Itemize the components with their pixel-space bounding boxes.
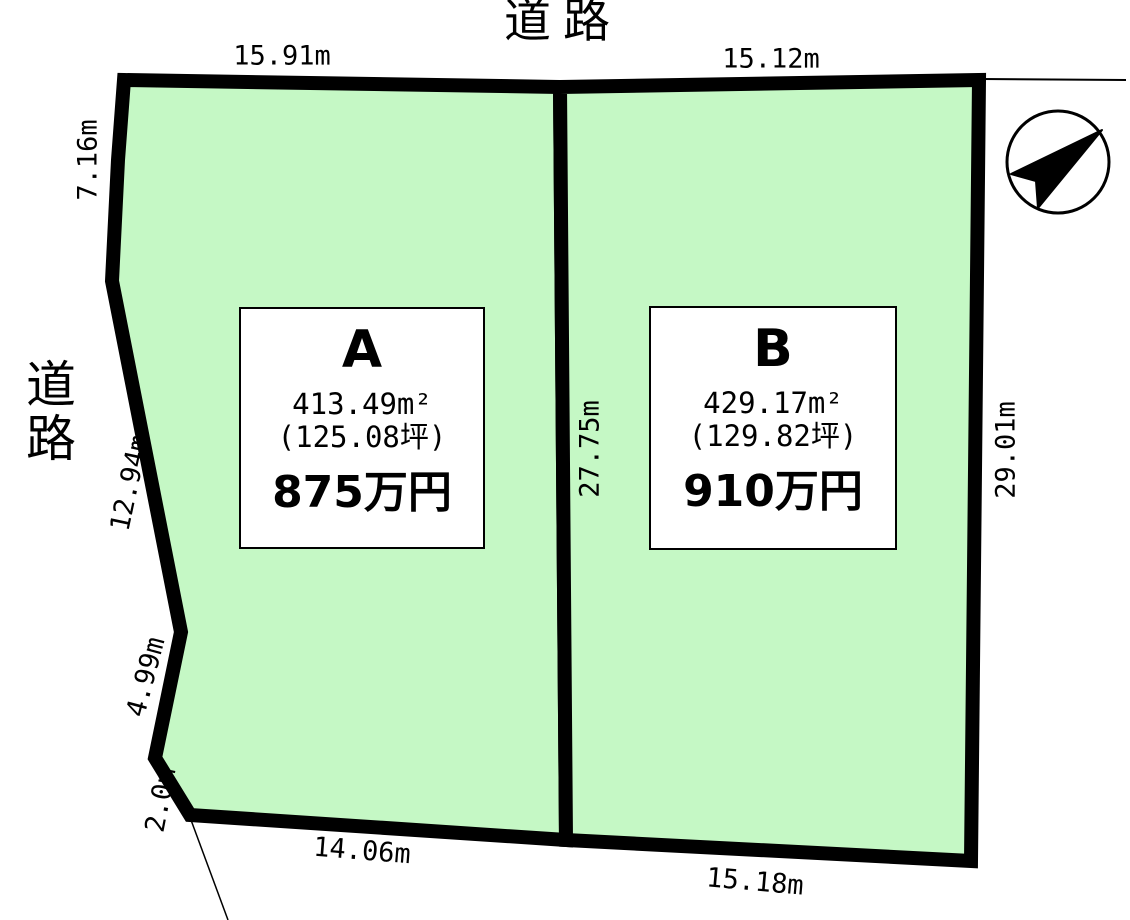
compass-icon (1007, 111, 1109, 213)
road-label-left: 道路 (24, 358, 78, 466)
parcel-b-area-tsubo: (129.82坪) (689, 420, 858, 453)
survey-line-bottom-left (191, 820, 228, 920)
parcel-b-price: 910万円 (683, 468, 863, 516)
parcel-b-area-m2: 429.17m² (703, 387, 843, 420)
dim-bottom-a: 14.06m (312, 834, 411, 869)
parcel-a-price: 875万円 (272, 469, 452, 517)
land-plot-diagram: 道路 道路 15.91m 15.12m 7.16m 12.94m 4.99m 2… (0, 0, 1130, 920)
dim-left-upper: 7.16m (75, 119, 102, 200)
parcel-b-id: B (753, 320, 793, 378)
dim-top-b: 15.12m (722, 46, 820, 73)
dim-bottom-b: 15.18m (705, 864, 805, 899)
dim-right-side: 29.01m (993, 401, 1020, 499)
parcel-a-area-m2: 413.49m² (292, 388, 432, 421)
dim-top-a: 15.91m (233, 43, 331, 70)
road-label-top: 道路 (504, 0, 622, 46)
dim-center-divider: 27.75m (577, 400, 604, 498)
parcel-a-id: A (342, 321, 382, 379)
survey-line-top-right (982, 79, 1126, 80)
parcel-a-area-tsubo: (125.08坪) (278, 421, 447, 454)
parcel-b-info-box: B 429.17m² (129.82坪) 910万円 (649, 306, 897, 550)
parcel-a-info-box: A 413.49m² (125.08坪) 875万円 (239, 307, 485, 549)
